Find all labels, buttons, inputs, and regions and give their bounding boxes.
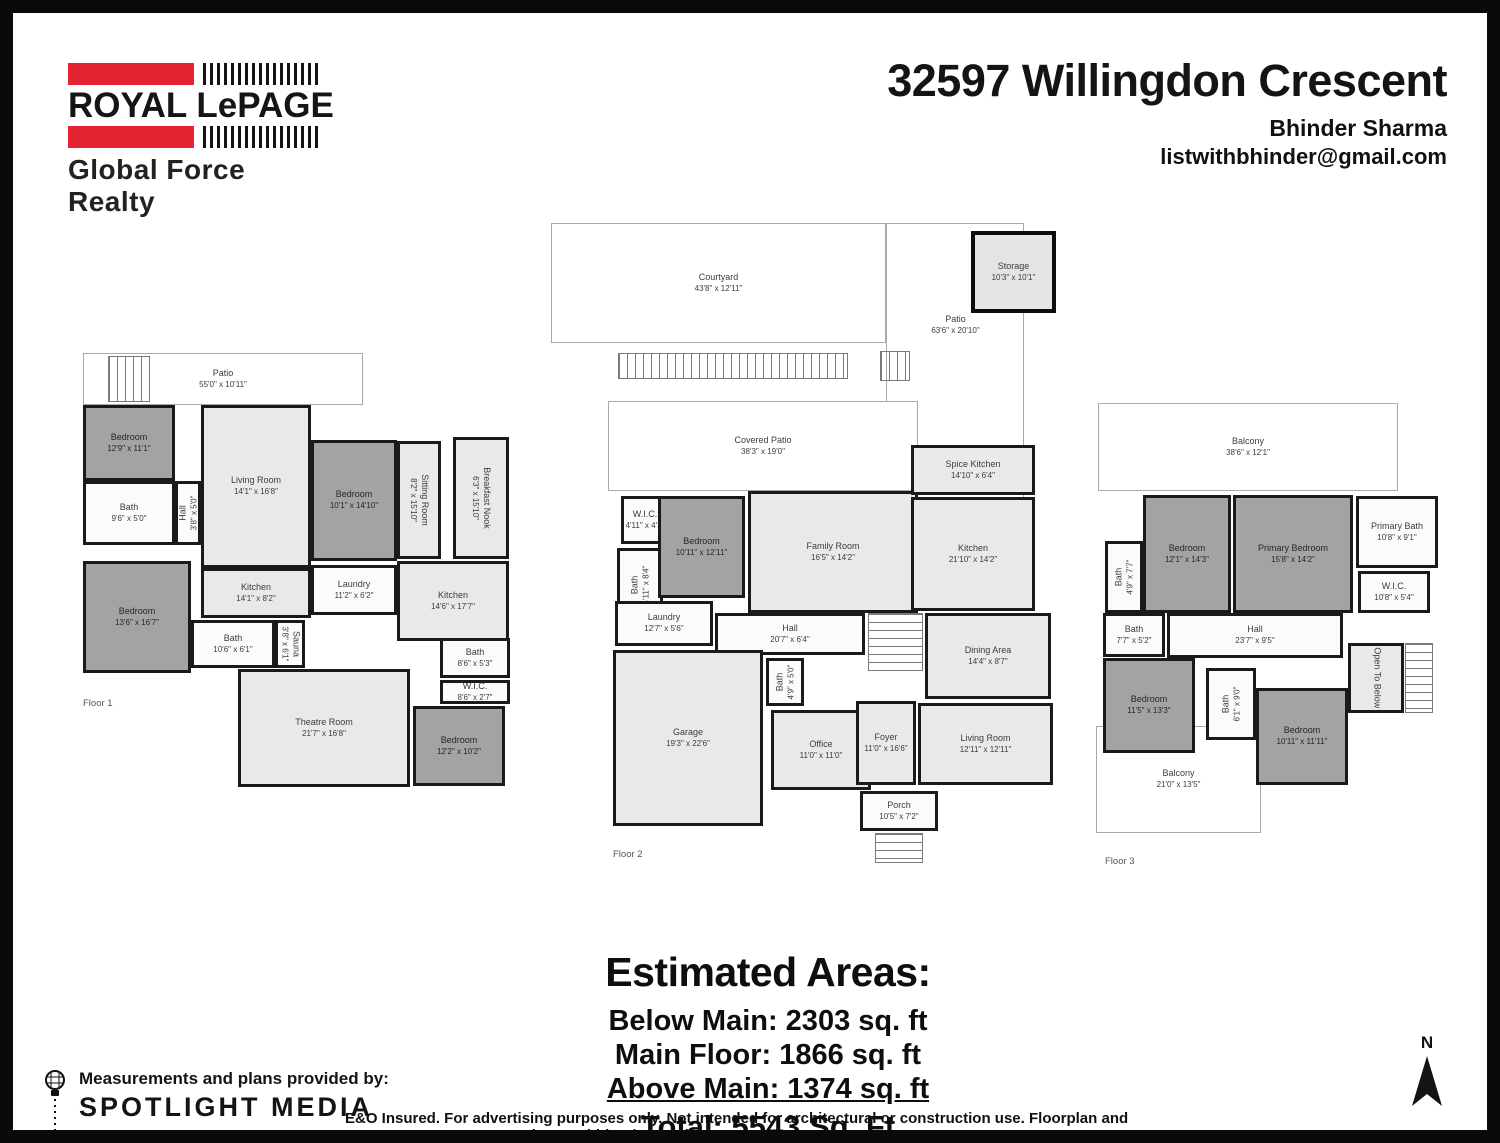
page-title: 32597 Willingdon Crescent: [887, 55, 1447, 107]
porch-room: Porch10'5" x 7'2": [860, 791, 938, 831]
primary-bedroom-room: Primary Bedroom15'8" x 14'2": [1233, 495, 1353, 613]
floorplan-page: ROYAL LePAGE Global Force Realty 32597 W…: [0, 0, 1500, 1143]
stairs: [618, 353, 848, 379]
estimated-areas-heading: Estimated Areas:: [458, 949, 1078, 996]
north-label: N: [1405, 1033, 1449, 1053]
sauna-room: Sauna3'8" x 6'1": [275, 620, 305, 668]
breakfast-nook-room: Breakfast Nook6'3" x 15'10": [453, 437, 509, 559]
provider-block: Measurements and plans provided by: SPOT…: [41, 1069, 389, 1143]
bath-room: Bath6'1" x 9'0": [1206, 668, 1256, 740]
bedroom-room: Bedroom12'1" x 14'3": [1143, 495, 1231, 613]
floor-1-plan: Patio55'0" x 10'11"Bedroom12'9" x 11'1"L…: [75, 346, 520, 891]
north-indicator: N: [1405, 1033, 1449, 1115]
area-below-main: Below Main: 2303 sq. ft: [458, 1004, 1078, 1038]
sitting-room-room: Sitting Room8'2" x 15'10": [397, 441, 441, 559]
courtyard-room: Courtyard43'8" x 12'11": [551, 223, 886, 343]
bedroom-room: Bedroom10'11" x 12'11": [658, 496, 745, 598]
agent-email: listwithbhinder@gmail.com: [887, 144, 1447, 170]
hall-room: Hall3'8" x 5'0": [175, 481, 201, 545]
w-i-c-room: W.I.C.10'8" x 5'4": [1358, 571, 1430, 613]
laundry-room: Laundry11'2" x 6'2": [311, 565, 397, 615]
floor-label: Floor 2: [613, 849, 643, 860]
theatre-room-room: Theatre Room21'7" x 16'8": [238, 669, 410, 787]
floor-2-plan: Courtyard43'8" x 12'11"Patio63'6" x 20'1…: [548, 213, 1058, 873]
stairs: [868, 613, 923, 671]
bath-room: Bath9'6" x 5'0": [83, 481, 175, 545]
balcony-room: Balcony38'6" x 12'1": [1098, 403, 1398, 491]
bedroom-room: Bedroom10'11" x 11'11": [1256, 688, 1348, 785]
logo-top-row: [68, 63, 320, 85]
logo-red-bar-bottom: [68, 126, 194, 148]
logo-tagline: Global Force Realty: [68, 154, 320, 218]
bedroom-room: Bedroom10'1" x 14'10": [311, 440, 397, 561]
title-block: 32597 Willingdon Crescent Bhinder Sharma…: [887, 55, 1447, 170]
hall-room: Hall20'7" x 6'4": [715, 613, 865, 655]
kitchen-room: Kitchen14'6" x 17'7": [397, 561, 509, 641]
bath-room: Bath7'7" x 5'2": [1103, 613, 1165, 657]
bath-room: Bath4'9" x 7'7": [1105, 541, 1143, 613]
floor-label: Floor 1: [83, 698, 113, 709]
agent-name: Bhinder Sharma: [887, 115, 1447, 142]
w-i-c-room: W.I.C.8'6" x 2'7": [440, 680, 510, 704]
north-arrow-icon: [1407, 1054, 1447, 1110]
disclaimer-text: E&O Insured. For advertising purposes on…: [345, 1110, 1205, 1143]
stairs: [875, 833, 923, 863]
bedroom-room: Bedroom12'9" x 11'1": [83, 405, 175, 481]
provider-name: SPOTLIGHT MEDIA: [79, 1092, 389, 1123]
foyer-room: Foyer11'0" x 16'6": [856, 701, 916, 785]
family-room-room: Family Room16'5" x 14'2": [748, 491, 918, 613]
logo-stripes-bottom: [203, 126, 320, 148]
area-above-main: Above Main: 1374 sq. ft: [458, 1072, 1078, 1106]
bedroom-room: Bedroom11'5" x 13'3": [1103, 658, 1195, 753]
logo-stripes-top: [203, 63, 320, 85]
kitchen-room: Kitchen14'1" x 8'2": [201, 568, 311, 618]
logo-red-bar-top: [68, 63, 194, 85]
spice-kitchen-room: Spice Kitchen14'10" x 6'4": [911, 445, 1035, 495]
provider-text: Measurements and plans provided by: SPOT…: [79, 1069, 389, 1123]
spotlight-media-icon: [41, 1069, 69, 1143]
living-room-room: Living Room14'1" x 16'8": [201, 405, 311, 568]
floor-label: Floor 3: [1105, 856, 1135, 867]
primary-bath-room: Primary Bath10'8" x 9'1": [1356, 496, 1438, 568]
storage-room: Storage10'3" x 10'1": [971, 231, 1056, 313]
bedroom-room: Bedroom13'6" x 16'7": [83, 561, 191, 673]
living-room-room: Living Room12'11" x 12'11": [918, 703, 1053, 785]
area-main-floor: Main Floor: 1866 sq. ft: [458, 1038, 1078, 1072]
royal-lepage-logo: ROYAL LePAGE Global Force Realty: [68, 63, 320, 218]
dining-area-room: Dining Area14'4" x 8'7": [925, 613, 1051, 699]
bedroom-room: Bedroom12'2" x 10'2": [413, 706, 505, 786]
open-to-below-room: Open To Below: [1348, 643, 1404, 713]
logo-brand-text: ROYAL LePAGE: [68, 88, 320, 123]
bath-room: Bath8'6" x 5'3": [440, 638, 510, 678]
stairs: [880, 351, 910, 381]
hall-room: Hall23'7" x 9'5": [1167, 613, 1343, 658]
kitchen-room: Kitchen21'10" x 14'2": [911, 497, 1035, 611]
bath-room: Bath10'6" x 6'1": [191, 620, 275, 668]
laundry-room: Laundry12'7" x 5'6": [615, 601, 713, 646]
stairs: [1405, 643, 1433, 713]
bath-room: Bath4'9" x 5'0": [766, 658, 804, 706]
garage-room: Garage19'3" x 22'6": [613, 650, 763, 826]
covered-patio-room: Covered Patio38'3" x 19'0": [608, 401, 918, 491]
floor-3-plan: Balcony38'6" x 12'1"Bedroom12'1" x 14'3"…: [1091, 398, 1456, 873]
logo-bottom-row: [68, 126, 320, 148]
stairs: [108, 356, 150, 402]
provided-by-text: Measurements and plans provided by:: [79, 1069, 389, 1089]
